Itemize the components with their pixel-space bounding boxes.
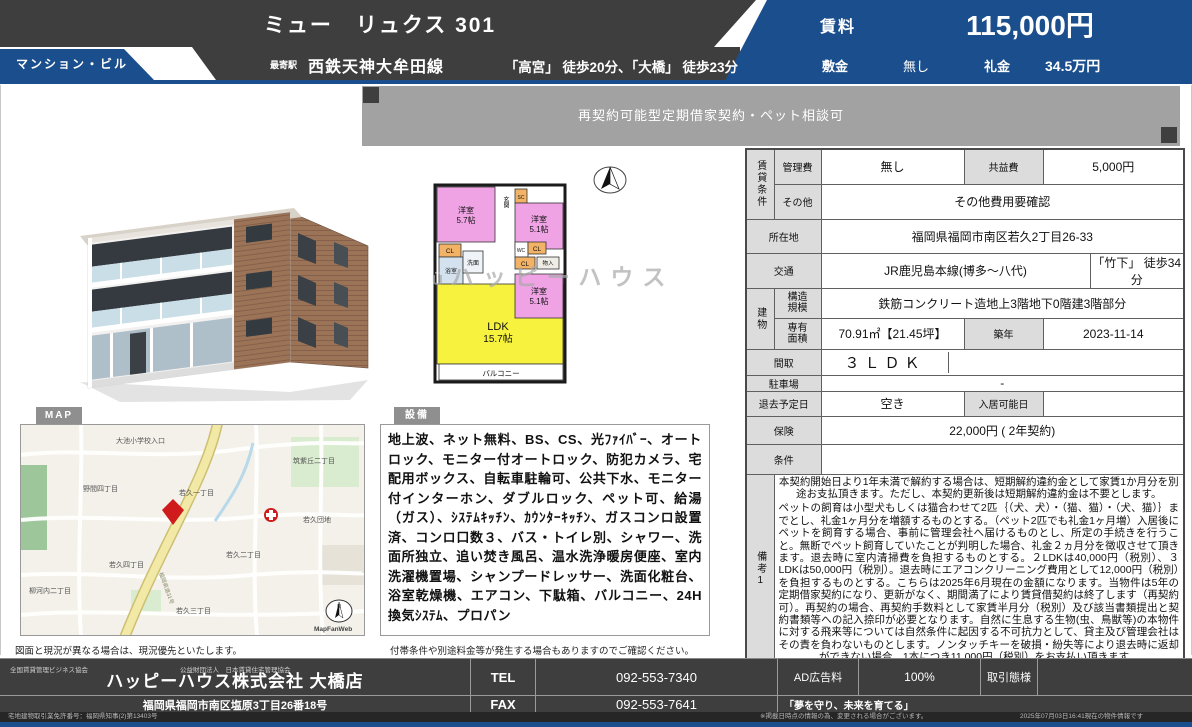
fax-number: 092-553-7641 (535, 696, 777, 713)
plan-ldk-label: LDK (487, 321, 509, 333)
map-credit: MapFanWeb (314, 626, 352, 633)
map-label: 若久団地 (303, 515, 331, 524)
moveout-value: 空き (821, 391, 964, 416)
conditions-value (821, 444, 1184, 474)
structure-value: 鉄筋コンクリート造地上3階地下0階建3階部分 (821, 288, 1184, 318)
key-money-label: 礼金 (984, 56, 1010, 75)
rent-value: 115,000円 (900, 4, 1160, 44)
ad-fee-label: AD広告料 (777, 659, 858, 695)
property-type-badge: マンション・ビル (0, 49, 170, 80)
area-value: 70.91㎡【21.45坪】 (821, 318, 964, 349)
movein-label: 入居可能日 (964, 391, 1043, 416)
station-walk-times: 「高宮」 徒歩20分、「大橋」 徒歩23分 (440, 56, 738, 76)
happyhouse-watermark: Üハッピーハウス (432, 258, 674, 292)
transport-label: 交通 (746, 253, 821, 288)
compass-icon (594, 167, 626, 193)
insurance-label: 保険 (746, 416, 821, 444)
group-rental-conditions: 賃貸条件 (746, 149, 774, 219)
equipment-section-badge: 設備 (394, 407, 440, 424)
map-label: 若久四丁目 (109, 560, 144, 569)
location-value: 福岡県福岡市南区若久2丁目26-33 (821, 219, 1184, 253)
plan-cl-label: CL (446, 248, 455, 255)
transport-walk: 「竹下」 徒歩34分 (1091, 254, 1184, 288)
plan-room-b-label: 洋室 (531, 214, 547, 224)
property-type-badge-label: マンション・ビル (0, 49, 170, 80)
header-accent-line (0, 80, 740, 84)
common-fee-value: 5,000円 (1043, 149, 1184, 184)
building-photo (50, 160, 380, 410)
transaction-type-value (1037, 659, 1192, 695)
map-hospital-icon (264, 508, 278, 522)
map-section-badge: MAP (36, 407, 82, 424)
transport-line: JR鹿児島本線(博多〜八代) (822, 254, 1091, 288)
fax-label: FAX (470, 696, 535, 713)
corner-square-icon (1161, 127, 1177, 143)
footer-fine-print: 宅地建物取引業免許番号：福岡県知事(2)第13403号 ※掲載日時点の情報の為、… (0, 712, 1192, 722)
insurance-value: 22,000円 ( 2年契約) (821, 416, 1184, 444)
plan-sc-label: SC (518, 195, 525, 201)
layout-label: 間取 (746, 349, 821, 375)
plan-room-b-size: 5.1帖 (529, 224, 548, 234)
built-year-value: 2023-11-14 (1043, 318, 1184, 349)
conditions-label: 条件 (746, 444, 821, 474)
structure-label: 構造規模 (774, 288, 821, 318)
svg-text:N: N (337, 604, 341, 610)
mgmt-fee-value: 無し (821, 149, 964, 184)
location-label: 所在地 (746, 219, 821, 253)
disclaimer-note: ※掲載日時点の情報の為、変更される場合がございます。 (760, 712, 927, 722)
building-front (88, 212, 290, 388)
remarks1-paragraph: 本契約開始日より1年未満で解約する場合は、短期解約違約金として家賃1か月分を別途… (775, 475, 1184, 502)
deposit-label: 敷金 (822, 56, 848, 75)
other-fee-value: その他費用要確認 (821, 184, 1184, 219)
footer-accent-strip (0, 722, 1192, 727)
tel-number: 092-553-7340 (535, 659, 777, 695)
company-slogan: 「夢を守り、未来を育てる」 (777, 696, 1192, 713)
page-title: ミュー リュクス 301 (0, 9, 760, 39)
map-graphic: 大池小学校入口 筑紫丘二丁目 野間四丁目 若久一丁目 若久団地 若久二丁目 若久… (21, 425, 364, 635)
happyhouse-logo-watermark: Ü (432, 272, 443, 289)
footer: 全国賃貸管理ビジネス協会 公益財団法人 日本賃貸住宅管理協会 ハッピーハウス株式… (0, 658, 1192, 712)
tel-label: TEL (470, 659, 535, 695)
layout-extra (949, 352, 1184, 373)
company-address: 福岡県福岡市南区塩原3丁目26番18号 (0, 697, 470, 713)
equipment-box: 地上波、ネット無料、BS、CS、光ﾌｧｲﾊﾞｰ、オートロック、モニター付オートロ… (380, 424, 710, 636)
equipment-list: 地上波、ネット無料、BS、CS、光ﾌｧｲﾊﾞｰ、オートロック、モニター付オートロ… (381, 425, 709, 630)
common-fee-label: 共益費 (964, 149, 1043, 184)
corner-square-icon (363, 87, 379, 103)
station-label: 最寄駅 (270, 58, 297, 71)
info-timestamp: 2025年07月03日16:41現在の物件情報です (1020, 712, 1143, 722)
contract-note-banner: 再契約可能型定期借家契約・ペット相談可 (362, 86, 1180, 146)
parking-label: 駐車場 (746, 375, 821, 391)
flyer-page: ミュー リュクス 301 マンション・ビル 最寄駅 西鉄天神大牟田線 「高宮」 … (0, 0, 1192, 727)
ad-fee-value: 100% (858, 659, 980, 695)
plan-cl-label: CL (533, 246, 542, 253)
movein-value (1043, 391, 1184, 416)
layout-value: ３ＬＤＫ (822, 352, 949, 373)
rent-label: 賃料 (820, 13, 856, 37)
key-money-value: 34.5万円 (1045, 56, 1100, 76)
contract-note-text: 再契約可能型定期借家契約・ペット相談可 (362, 86, 1180, 146)
map-label: 柳河内二丁目 (29, 586, 71, 595)
happyhouse-watermark-text: ハッピーハウス (451, 264, 675, 290)
map-label: 若久一丁目 (179, 488, 214, 497)
transaction-type-label: 取引態様 (980, 659, 1037, 695)
deposit-value: 無し (903, 56, 929, 75)
area-label: 専有面積 (774, 318, 821, 349)
plan-room-a-size: 5.7帖 (456, 215, 475, 225)
plan-wc-label: WC (517, 248, 526, 254)
plan-balcony-label: バルコニー (482, 369, 519, 378)
map-label: 大池小学校入口 (116, 436, 165, 445)
built-year-label: 築年 (964, 318, 1043, 349)
map-label: 若久二丁目 (226, 550, 261, 559)
plan-ldk-size: 15.7帖 (483, 332, 512, 345)
license-number: 宅地建物取引業免許番号：福岡県知事(2)第13403号 (8, 712, 158, 722)
map-caption: 図面と現況が異なる場合は、現況優先といたします。 (15, 643, 242, 657)
remarks1-paragraph: ペットの飼育は小型犬もしくは猫合わせて2匹｛（犬、犬）・（猫、猫）・（犬、猫）｝… (775, 501, 1184, 664)
property-details-table: 賃貸条件 管理費 無し 共益費 5,000円 その他 その他費用要確認 所在地 … (745, 148, 1185, 708)
plan-entrance-label: 玄関 (502, 195, 509, 209)
plan-room-c-size: 5.1帖 (529, 296, 548, 306)
group-building: 建物 (746, 288, 774, 349)
plan-room-a-label: 洋室 (458, 205, 474, 215)
company-name: ハッピーハウス株式会社 大橋店 (0, 667, 470, 692)
station-line-name: 西鉄天神大牟田線 (308, 53, 444, 77)
map-label: 筑紫丘二丁目 (293, 456, 335, 465)
map-compass-icon: N (326, 600, 352, 622)
equipment-caption: 付帯条件や別途料金等が発生する場合もありますのでご確認ください。 (390, 643, 694, 657)
parking-value: - (821, 375, 1184, 391)
map-label: 若久三丁目 (176, 606, 211, 615)
remarks1-label: 備考1 (746, 474, 774, 665)
map-label: 野間四丁目 (83, 485, 118, 493)
mgmt-fee-label: 管理費 (774, 149, 821, 184)
map-image: 大池小学校入口 筑紫丘二丁目 野間四丁目 若久一丁目 若久団地 若久二丁目 若久… (20, 424, 365, 636)
moveout-label: 退去予定日 (746, 391, 821, 416)
other-fee-label: その他 (774, 184, 821, 219)
page-border-left (0, 85, 1, 655)
